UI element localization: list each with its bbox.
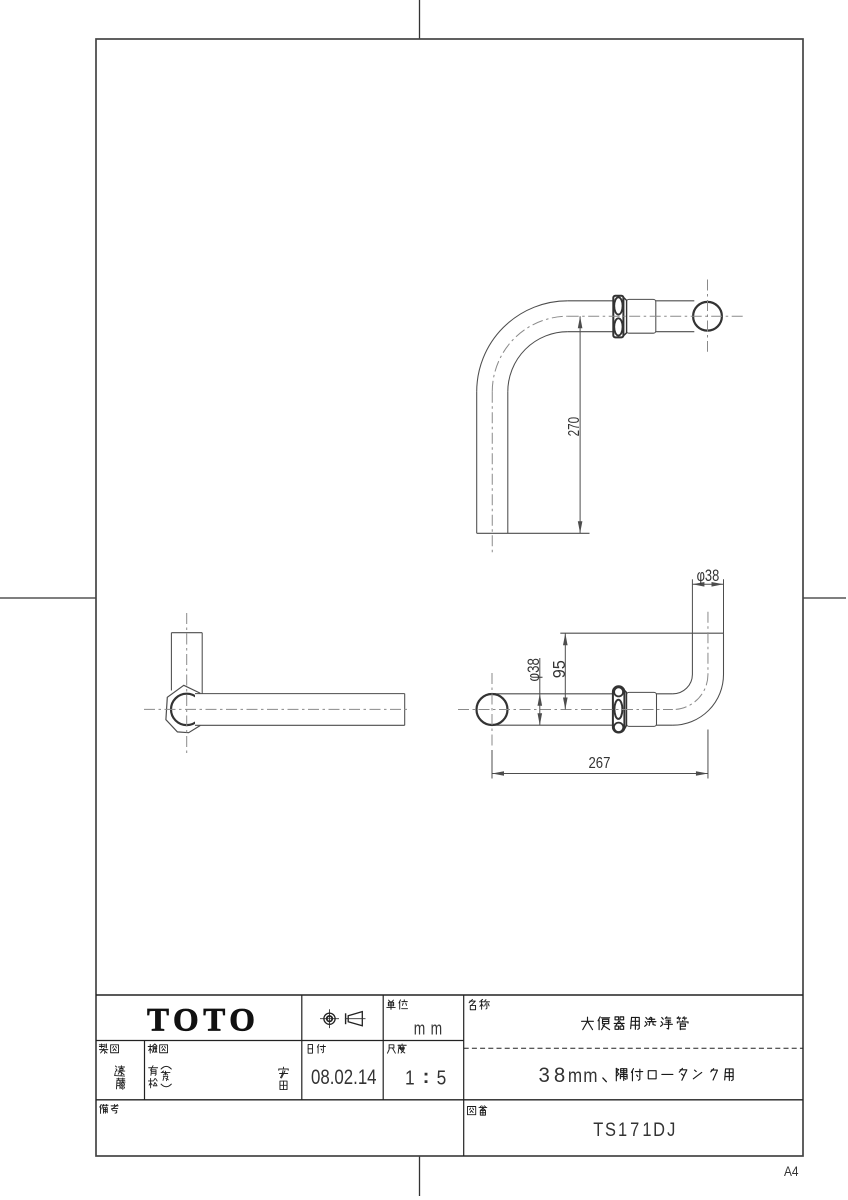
svg-text:φ38: φ38 bbox=[525, 658, 544, 681]
svg-text:8: 8 bbox=[554, 1063, 565, 1087]
svg-text:TOTO: TOTO bbox=[147, 1002, 260, 1038]
svg-text:T: T bbox=[593, 1119, 603, 1141]
svg-text:5: 5 bbox=[437, 1067, 447, 1090]
svg-text:1: 1 bbox=[618, 1119, 627, 1141]
svg-text:m: m bbox=[583, 1065, 597, 1086]
svg-text:m: m bbox=[414, 1019, 425, 1039]
svg-text:J: J bbox=[667, 1119, 675, 1141]
svg-text:95: 95 bbox=[549, 660, 569, 678]
svg-text:3: 3 bbox=[539, 1063, 550, 1087]
svg-text:D: D bbox=[653, 1119, 665, 1141]
svg-text:A4: A4 bbox=[784, 1163, 799, 1179]
svg-text:270: 270 bbox=[564, 417, 582, 437]
svg-text:7: 7 bbox=[630, 1119, 639, 1141]
svg-text:1: 1 bbox=[405, 1067, 415, 1090]
svg-text:1: 1 bbox=[642, 1119, 651, 1141]
svg-text:m: m bbox=[568, 1065, 582, 1086]
svg-text::: : bbox=[423, 1066, 430, 1088]
svg-text:m: m bbox=[431, 1019, 442, 1039]
svg-text:φ38: φ38 bbox=[697, 568, 720, 586]
svg-text:267: 267 bbox=[589, 755, 611, 772]
svg-text:S: S bbox=[605, 1119, 616, 1141]
svg-text:08.02.14: 08.02.14 bbox=[311, 1065, 377, 1090]
